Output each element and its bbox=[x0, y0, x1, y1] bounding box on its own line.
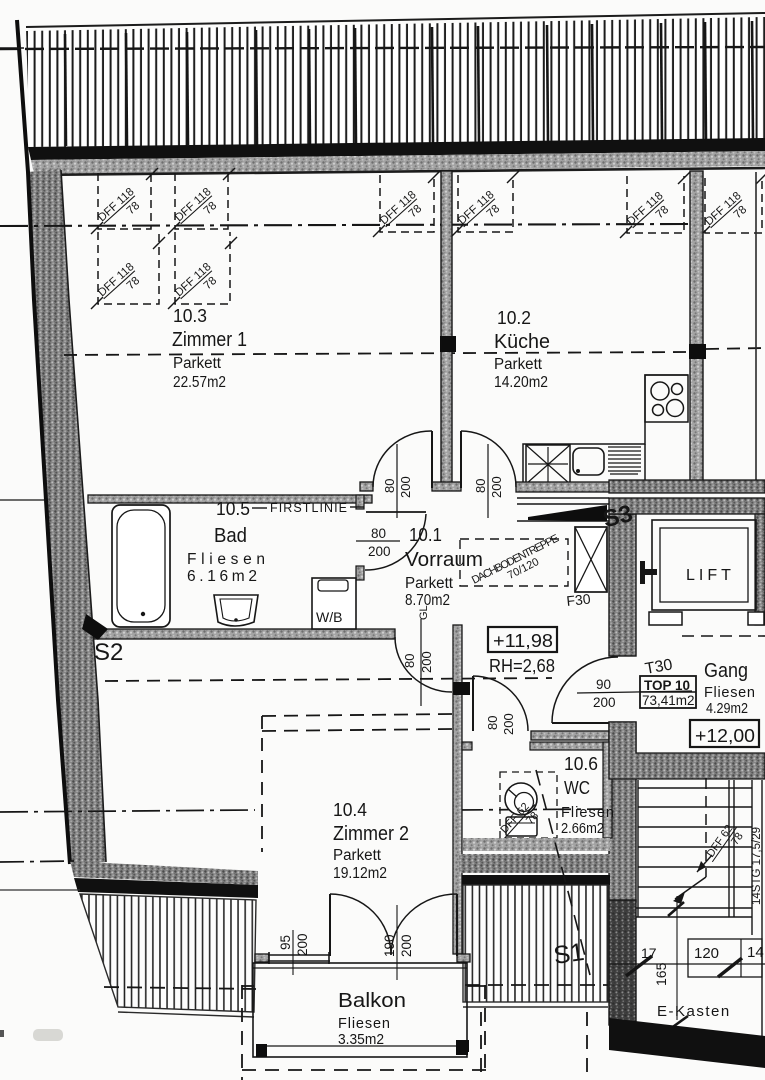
svg-text:80: 80 bbox=[473, 479, 488, 493]
svg-text:10.1: 10.1 bbox=[409, 525, 442, 545]
svg-text:73,41m2: 73,41m2 bbox=[642, 693, 695, 708]
svg-text:200: 200 bbox=[398, 476, 413, 498]
svg-text:200: 200 bbox=[489, 476, 504, 498]
svg-text:90: 90 bbox=[596, 677, 611, 692]
svg-text:3.35m2: 3.35m2 bbox=[338, 1032, 384, 1048]
svg-text:80: 80 bbox=[402, 654, 417, 668]
svg-text:17: 17 bbox=[641, 945, 657, 961]
svg-text:Parkett: Parkett bbox=[494, 356, 543, 373]
svg-text:10.5: 10.5 bbox=[216, 499, 250, 519]
svg-text:Parkett: Parkett bbox=[333, 847, 382, 864]
svg-text:Fliesen: Fliesen bbox=[704, 685, 755, 701]
svg-text:S2: S2 bbox=[94, 639, 123, 666]
svg-text:14: 14 bbox=[747, 944, 764, 961]
svg-text:+12,00: +12,00 bbox=[695, 726, 755, 746]
svg-text:80: 80 bbox=[485, 716, 500, 730]
svg-text:10.6: 10.6 bbox=[564, 754, 598, 774]
svg-text:+11,98: +11,98 bbox=[493, 631, 553, 651]
svg-text:200: 200 bbox=[419, 651, 434, 673]
svg-text:F30: F30 bbox=[566, 591, 592, 609]
svg-text:80: 80 bbox=[382, 479, 397, 493]
svg-text:Vorraum: Vorraum bbox=[405, 549, 483, 571]
svg-text:4.29m2: 4.29m2 bbox=[706, 701, 748, 717]
svg-text:GL: GL bbox=[418, 605, 430, 620]
svg-text:Parkett: Parkett bbox=[173, 355, 222, 372]
svg-text:165: 165 bbox=[653, 962, 669, 986]
svg-text:14STG 17,5/29: 14STG 17,5/29 bbox=[751, 827, 763, 905]
svg-text:95: 95 bbox=[278, 935, 293, 950]
svg-text:200: 200 bbox=[501, 713, 516, 735]
svg-text:Parkett: Parkett bbox=[405, 575, 454, 592]
svg-text:10.3: 10.3 bbox=[173, 306, 207, 326]
svg-text:Zimmer 1: Zimmer 1 bbox=[172, 329, 247, 351]
svg-text:190: 190 bbox=[382, 934, 397, 957]
svg-text:Küche: Küche bbox=[494, 331, 550, 353]
svg-text:200: 200 bbox=[295, 933, 310, 956]
svg-text:TOP 10: TOP 10 bbox=[644, 678, 690, 693]
svg-text:2.66m2: 2.66m2 bbox=[561, 821, 604, 837]
svg-text:Bad: Bad bbox=[214, 525, 247, 547]
svg-text:22.57m2: 22.57m2 bbox=[173, 374, 226, 391]
svg-text:10.4: 10.4 bbox=[333, 800, 367, 820]
svg-text:E-Kasten: E-Kasten bbox=[657, 1003, 731, 1020]
svg-text:19.12m2: 19.12m2 bbox=[333, 865, 387, 882]
svg-text:10.2: 10.2 bbox=[497, 308, 531, 328]
svg-text:FIRSTLINIE: FIRSTLINIE bbox=[270, 501, 347, 515]
svg-text:RH=2,68: RH=2,68 bbox=[489, 656, 555, 676]
svg-text:200: 200 bbox=[368, 544, 391, 559]
svg-text:Balkon: Balkon bbox=[338, 990, 406, 1012]
svg-text:WC: WC bbox=[564, 778, 590, 798]
svg-text:W/B: W/B bbox=[316, 609, 342, 625]
svg-text:Gang: Gang bbox=[704, 660, 748, 682]
svg-text:LIFT: LIFT bbox=[686, 567, 735, 584]
svg-text:Fliesen: Fliesen bbox=[338, 1016, 390, 1032]
svg-text:14.20m2: 14.20m2 bbox=[494, 374, 548, 391]
svg-text:80: 80 bbox=[371, 526, 386, 541]
svg-text:200: 200 bbox=[593, 695, 616, 710]
svg-text:200: 200 bbox=[399, 934, 414, 957]
svg-text:120: 120 bbox=[694, 945, 719, 962]
svg-text:Zimmer 2: Zimmer 2 bbox=[333, 823, 409, 845]
